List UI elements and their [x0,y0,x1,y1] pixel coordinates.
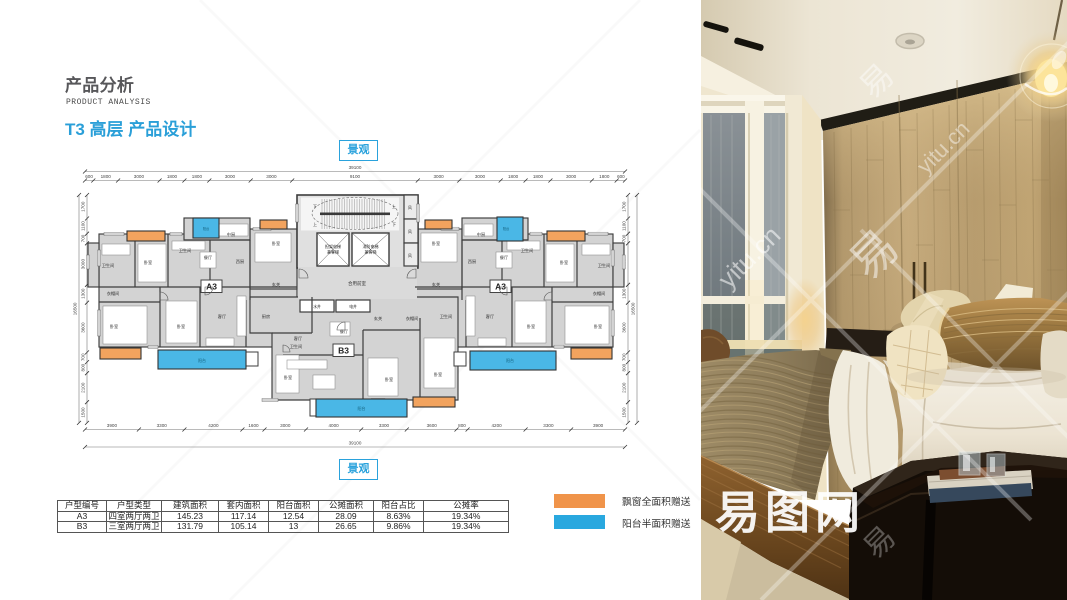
svg-text:3900: 3900 [593,423,604,428]
svg-text:卧室: 卧室 [594,323,602,330]
svg-text:3600: 3600 [427,423,438,428]
svg-text:600: 600 [617,174,625,179]
svg-text:卧室: 卧室 [284,374,292,381]
svg-text:3300: 3300 [157,423,168,428]
svg-text:A3: A3 [206,282,217,292]
svg-text:2100: 2100 [622,382,627,393]
svg-text:3900: 3900 [107,423,118,428]
svg-text:上: 上 [313,221,317,227]
svg-text:客厅: 客厅 [218,313,226,320]
svg-text:风: 风 [408,230,412,234]
svg-text:700: 700 [622,353,627,361]
svg-text:4200: 4200 [491,423,502,428]
svg-text:39100: 39100 [349,441,362,446]
svg-text:玄关: 玄关 [374,315,382,322]
svg-text:16500: 16500 [631,302,636,315]
svg-text:消防电梯: 消防电梯 [363,243,379,249]
svg-text:9100: 9100 [350,174,361,179]
svg-text:700: 700 [622,234,627,242]
svg-text:客厅: 客厅 [294,335,302,342]
svg-text:衣帽间: 衣帽间 [406,315,419,322]
svg-text:卫生间: 卫生间 [598,262,611,269]
svg-text:担架电梯: 担架电梯 [325,243,341,249]
svg-text:3000: 3000 [266,174,277,179]
svg-text:800: 800 [458,423,466,428]
svg-text:3000: 3000 [566,174,577,179]
svg-text:卫生间: 卫生间 [179,247,192,254]
svg-text:1800: 1800 [167,174,178,179]
svg-text:A3: A3 [495,282,506,292]
svg-text:餐厅: 餐厅 [500,254,508,261]
svg-text:餐厅: 餐厅 [204,254,212,261]
svg-text:下: 下 [313,204,317,209]
svg-text:厨房: 厨房 [262,313,270,320]
svg-text:中厨: 中厨 [477,231,485,238]
svg-text:1700: 1700 [81,201,86,212]
svg-text:衣帽间: 衣帽间 [593,290,606,297]
svg-text:700: 700 [81,234,86,242]
svg-text:4200: 4200 [208,423,219,428]
svg-text:阳台: 阳台 [358,405,366,411]
svg-text:800: 800 [81,363,86,371]
svg-text:700: 700 [81,353,86,361]
svg-text:卧室: 卧室 [527,323,535,330]
svg-text:卧室: 卧室 [385,376,393,383]
svg-text:衣帽间: 衣帽间 [107,290,120,297]
svg-text:1300: 1300 [81,288,86,299]
svg-text:1800: 1800 [192,174,203,179]
svg-text:1600: 1600 [248,423,259,428]
svg-text:1800: 1800 [508,174,519,179]
svg-text:风: 风 [408,254,412,258]
svg-text:阳台: 阳台 [506,357,514,363]
svg-text:3600: 3600 [622,322,627,333]
svg-text:下: 下 [392,222,396,227]
svg-text:3300: 3300 [379,423,390,428]
svg-text:卧室: 卧室 [432,240,440,247]
svg-text:阳台: 阳台 [203,226,209,231]
svg-text:B3: B3 [338,346,349,356]
svg-text:3000: 3000 [475,174,486,179]
svg-text:电井: 电井 [349,304,357,309]
svg-text:卧室: 卧室 [177,323,185,330]
svg-text:上: 上 [392,203,396,209]
svg-text:餐厅: 餐厅 [340,328,348,335]
svg-text:3000: 3000 [134,174,145,179]
svg-text:1700: 1700 [622,201,627,212]
svg-text:卧室: 卧室 [144,259,152,266]
svg-text:3000: 3000 [225,174,236,179]
svg-text:3000: 3000 [433,174,444,179]
svg-text:1500: 1500 [622,407,627,418]
svg-text:卧室: 卧室 [434,371,442,378]
svg-text:兼客梯: 兼客梯 [327,249,339,255]
svg-text:中厨: 中厨 [227,231,235,238]
svg-text:3000: 3000 [81,259,86,270]
svg-text:阳台: 阳台 [198,357,206,363]
svg-text:卫生间: 卫生间 [521,247,534,254]
svg-text:兼客梯: 兼客梯 [365,249,377,255]
svg-text:39100: 39100 [349,165,362,170]
svg-text:水井: 水井 [313,304,321,309]
svg-text:卧室: 卧室 [272,240,280,247]
svg-text:合用前室: 合用前室 [348,280,366,287]
svg-text:4000: 4000 [328,423,339,428]
svg-text:1800: 1800 [101,174,112,179]
svg-text:2100: 2100 [81,382,86,393]
svg-text:玄关: 玄关 [432,281,440,288]
svg-text:1800: 1800 [533,174,544,179]
svg-text:3300: 3300 [543,423,554,428]
svg-text:1100: 1100 [622,221,627,231]
svg-text:16500: 16500 [73,302,78,315]
svg-text:卫生间: 卫生间 [290,343,303,350]
svg-text:卧室: 卧室 [110,323,118,330]
svg-text:客厅: 客厅 [486,313,494,320]
svg-text:阳台: 阳台 [503,226,509,231]
svg-text:卧室: 卧室 [560,259,568,266]
svg-text:风: 风 [408,206,412,210]
svg-text:3600: 3600 [81,322,86,333]
svg-text:3000: 3000 [280,423,291,428]
svg-text:600: 600 [85,174,93,179]
svg-text:1100: 1100 [81,221,86,231]
svg-text:1500: 1500 [81,407,86,418]
svg-text:卫生间: 卫生间 [102,262,115,269]
svg-text:1300: 1300 [622,288,627,299]
svg-text:800: 800 [622,363,627,371]
svg-text:玄关: 玄关 [272,281,280,288]
svg-text:1800: 1800 [599,174,610,179]
svg-text:卫生间: 卫生间 [440,313,453,320]
svg-text:易图网: 易图网 [715,487,865,538]
